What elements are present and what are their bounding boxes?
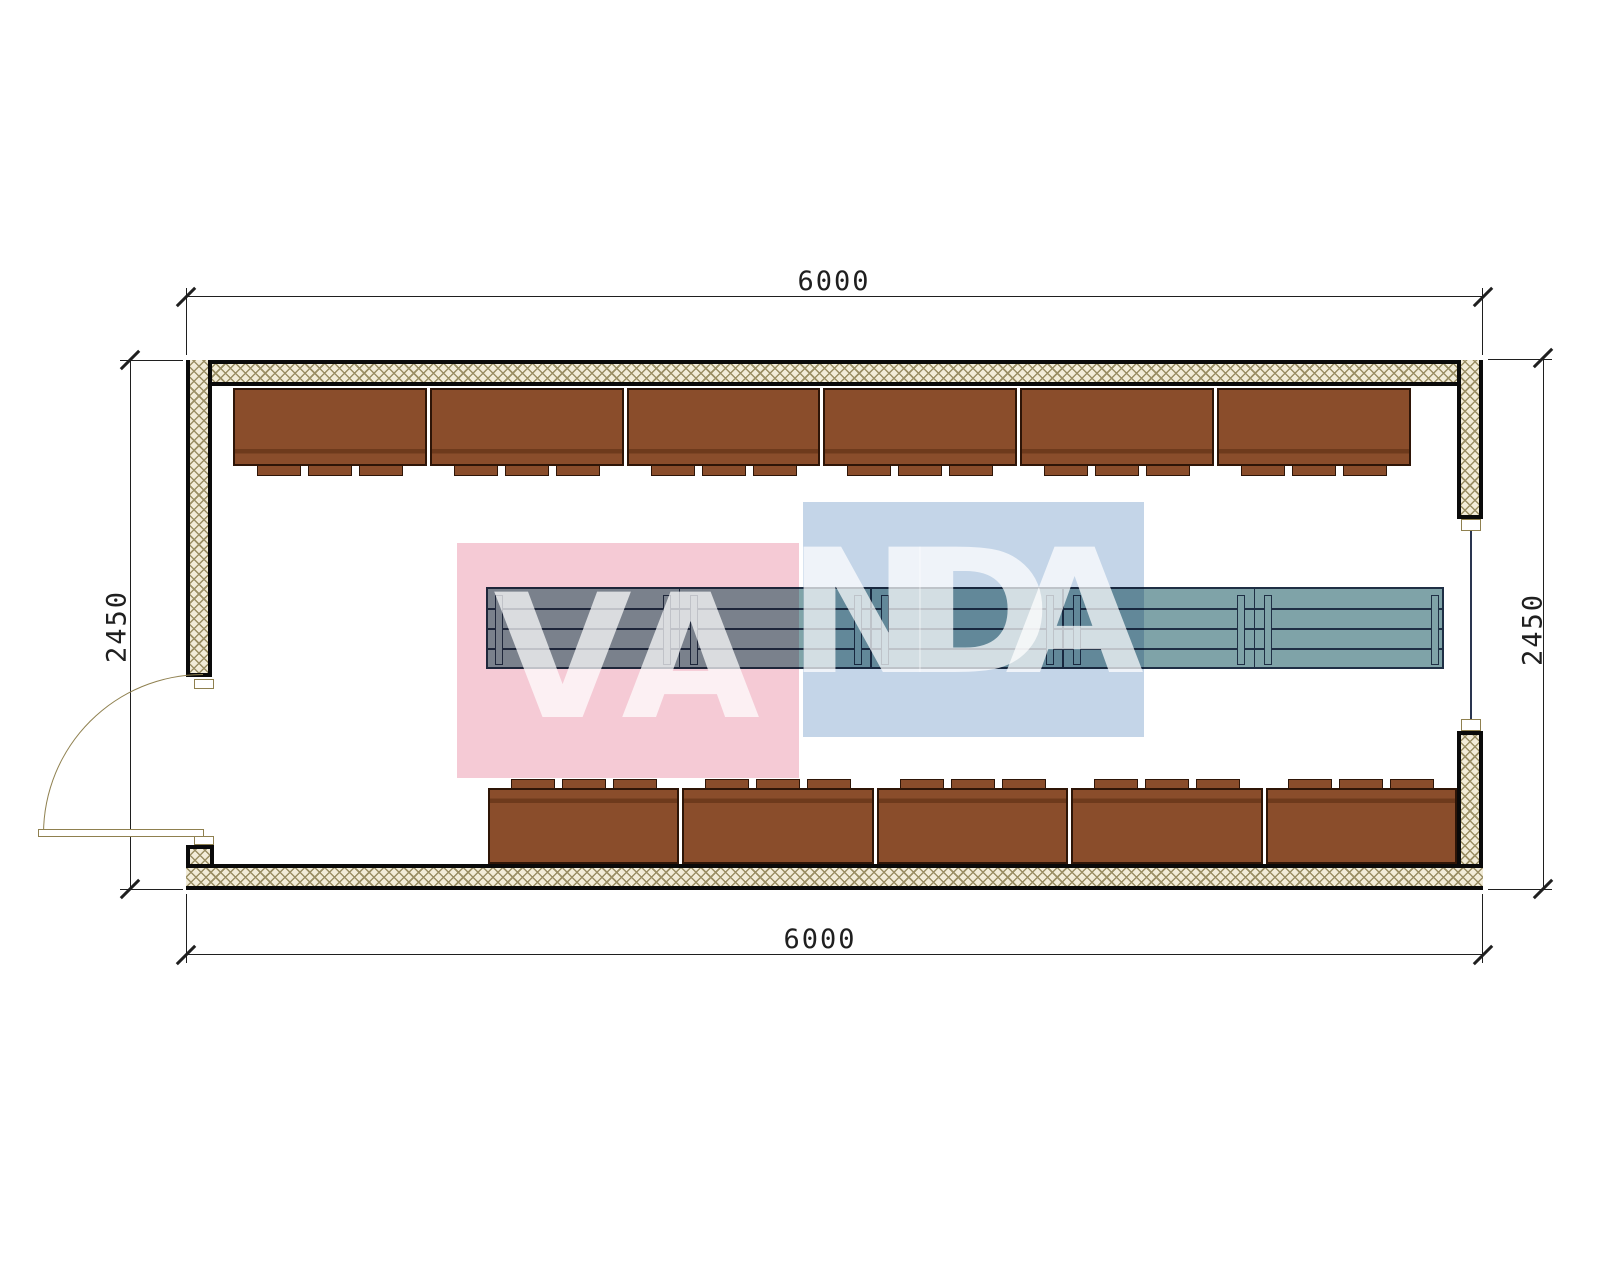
seat-block [430,388,624,476]
door-swing-arc [43,674,203,834]
table-section-divider [1254,589,1256,667]
seat-tab [613,779,657,788]
seat-tab [308,466,352,476]
seat-block [1217,388,1411,476]
seat-tab-row [430,466,624,476]
window-jamb-top [1461,519,1481,531]
seat-tab-row [1217,466,1411,476]
seat-block [1020,388,1214,476]
seat-tab-row [823,466,1017,476]
seat-body [430,388,624,466]
watermark-letter: A [621,572,759,744]
seat-tab-row [1266,779,1457,788]
watermark-letter: V [493,572,631,744]
seat-tab-row [1071,779,1262,788]
seat-tab [702,466,746,476]
seat-tab [1288,779,1332,788]
seat-tab [951,779,995,788]
seat-tab [257,466,301,476]
seat-block [233,388,427,476]
seat-tab [1044,466,1088,476]
seat-tab [454,466,498,476]
seat-tab [705,779,749,788]
seat-tab [1146,466,1190,476]
seat-tab [807,779,851,788]
seat-body [233,388,427,466]
seat-tab [949,466,993,476]
seat-block [877,779,1068,864]
seat-tab [1196,779,1240,788]
seat-tab [900,779,944,788]
window-jamb-bottom [1461,719,1481,731]
seat-body [1217,388,1411,466]
seat-body [627,388,821,466]
seat-tab [1094,779,1138,788]
seat-block [1071,779,1262,864]
wall-top [186,360,1483,386]
table-leg-slat [1431,595,1439,665]
seat-body [1071,788,1262,864]
seat-tab [651,466,695,476]
seat-row-top [233,388,1411,476]
seat-tab-row [233,466,427,476]
seat-block [682,779,873,864]
door-jamb-bottom [194,836,214,845]
seat-tab [1145,779,1189,788]
seat-tab-row [627,466,821,476]
wall-left [186,360,212,677]
seat-tab-row [877,779,1068,788]
table-leg-slat [1264,595,1272,665]
seat-tab [847,466,891,476]
seat-body [1020,388,1214,466]
seat-tab [562,779,606,788]
dimension-label-left: 2450 [102,577,133,677]
seat-tab [898,466,942,476]
dimension-label-bottom: 6000 [770,924,870,955]
seat-tab-row [1020,466,1214,476]
wall-bottom [186,864,1483,890]
seat-tab [1241,466,1285,476]
seat-tab [505,466,549,476]
seat-block [488,779,679,864]
dimension-label-top: 6000 [784,266,884,297]
window-line [1470,531,1472,719]
seat-row-bottom [488,779,1457,864]
seat-tab-row [488,779,679,788]
seat-tab [1343,466,1387,476]
seat-tab [1292,466,1336,476]
seat-body [1266,788,1457,864]
floor-plan-canvas: 6000 6000 2450 2450 [0,0,1600,1280]
wall-door-stub [186,845,214,864]
seat-tab [756,779,800,788]
dimension-label-right: 2450 [1518,580,1549,680]
seat-tab-row [682,779,873,788]
wall-right-upper [1457,360,1483,519]
seat-tab [511,779,555,788]
door-leaf [38,829,204,837]
table-leg-slat [1237,595,1245,665]
seat-body [682,788,873,864]
seat-body [488,788,679,864]
seat-block [627,388,821,476]
seat-tab [556,466,600,476]
watermark-letter: A [1005,527,1143,699]
seat-body [823,388,1017,466]
seat-body [877,788,1068,864]
seat-tab [1002,779,1046,788]
seat-tab [1390,779,1434,788]
seat-tab [753,466,797,476]
seat-block [823,388,1017,476]
seat-tab [1095,466,1139,476]
seat-block [1266,779,1457,864]
seat-tab [1339,779,1383,788]
seat-tab [359,466,403,476]
